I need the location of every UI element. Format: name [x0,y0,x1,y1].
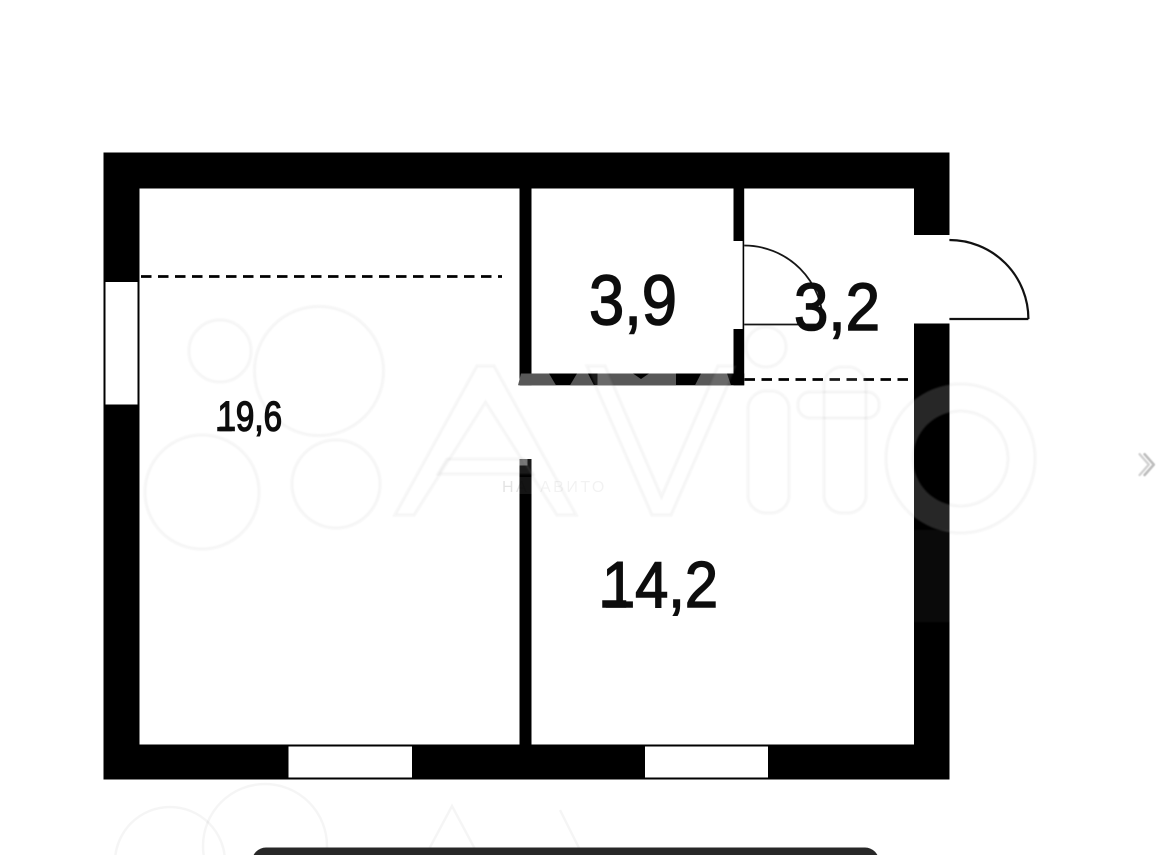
svg-text:3,2: 3,2 [794,271,880,345]
svg-text:НА: НА [502,479,529,496]
svg-text:АВИТО: АВИТО [540,479,607,496]
svg-text:14,2: 14,2 [602,548,718,621]
svg-text:3,9: 3,9 [589,261,677,340]
svg-text:19,6: 19,6 [218,393,283,440]
